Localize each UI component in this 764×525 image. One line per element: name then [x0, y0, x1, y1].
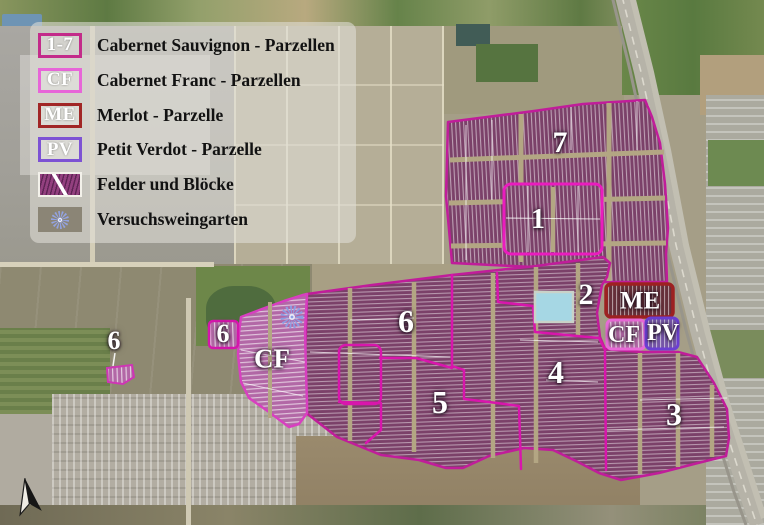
legend-label: Cabernet Sauvignon - Parzellen [97, 35, 335, 56]
starburst-icon [47, 208, 73, 232]
petit-verdot-label: PV [647, 321, 679, 345]
parcel-2-label: 2 [579, 280, 594, 310]
cf-east-label: CF [608, 323, 640, 347]
cabernet-franc-swatch: CF [38, 68, 82, 93]
legend-panel: 1-7 Cabernet Sauvignon - Parzellen CF Ca… [30, 22, 356, 243]
petit-verdot-swatch: PV [38, 137, 82, 162]
parcel-6-label: 6 [398, 305, 414, 337]
legend-row-fields-blocks: Felder und Blöcke [38, 172, 356, 197]
fields-blocks-hatch-swatch [38, 172, 82, 197]
vineyard-map: 7 1 2 3 4 5 6 6 6 CF ME CF PV 1-7 Cabern… [0, 0, 764, 525]
legend-row-merlot: ME Merlot - Parzelle [38, 103, 356, 128]
legend-label: Petit Verdot - Parzelle [97, 139, 262, 160]
parcel-5-label: 5 [432, 386, 448, 418]
merlot-swatch: ME [38, 103, 82, 128]
parcel-7-label: 7 [553, 128, 568, 158]
legend-label: Cabernet Franc - Parzellen [97, 70, 301, 91]
parcel-6-west-area [107, 353, 134, 384]
pond [535, 292, 573, 322]
cf-left-label: CF [254, 346, 290, 373]
legend-label: Merlot - Parzelle [97, 105, 223, 126]
north-arrow-icon [14, 476, 42, 514]
legend-row-cabernet-franc: CF Cabernet Franc - Parzellen [38, 68, 356, 93]
parcel-4-label: 4 [548, 356, 564, 388]
legend-row-petit-verdot: PV Petit Verdot - Parzelle [38, 137, 356, 162]
legend-row-cabernet-sauvignon: 1-7 Cabernet Sauvignon - Parzellen [38, 33, 356, 58]
parcel-3-label: 3 [666, 398, 682, 430]
cabernet-sauvignon-swatch: 1-7 [38, 33, 82, 58]
merlot-label: ME [620, 289, 660, 314]
parcel-6-small-label: 6 [217, 321, 230, 347]
legend-row-experimental-vineyard: Versuchsweingarten [38, 207, 356, 232]
legend-label: Versuchsweingarten [97, 209, 248, 230]
parcel-1-label: 1 [531, 206, 545, 234]
experimental-vineyard-swatch [38, 207, 82, 232]
parcel-6-west-label: 6 [108, 328, 121, 354]
legend-label: Felder und Blöcke [97, 174, 234, 195]
